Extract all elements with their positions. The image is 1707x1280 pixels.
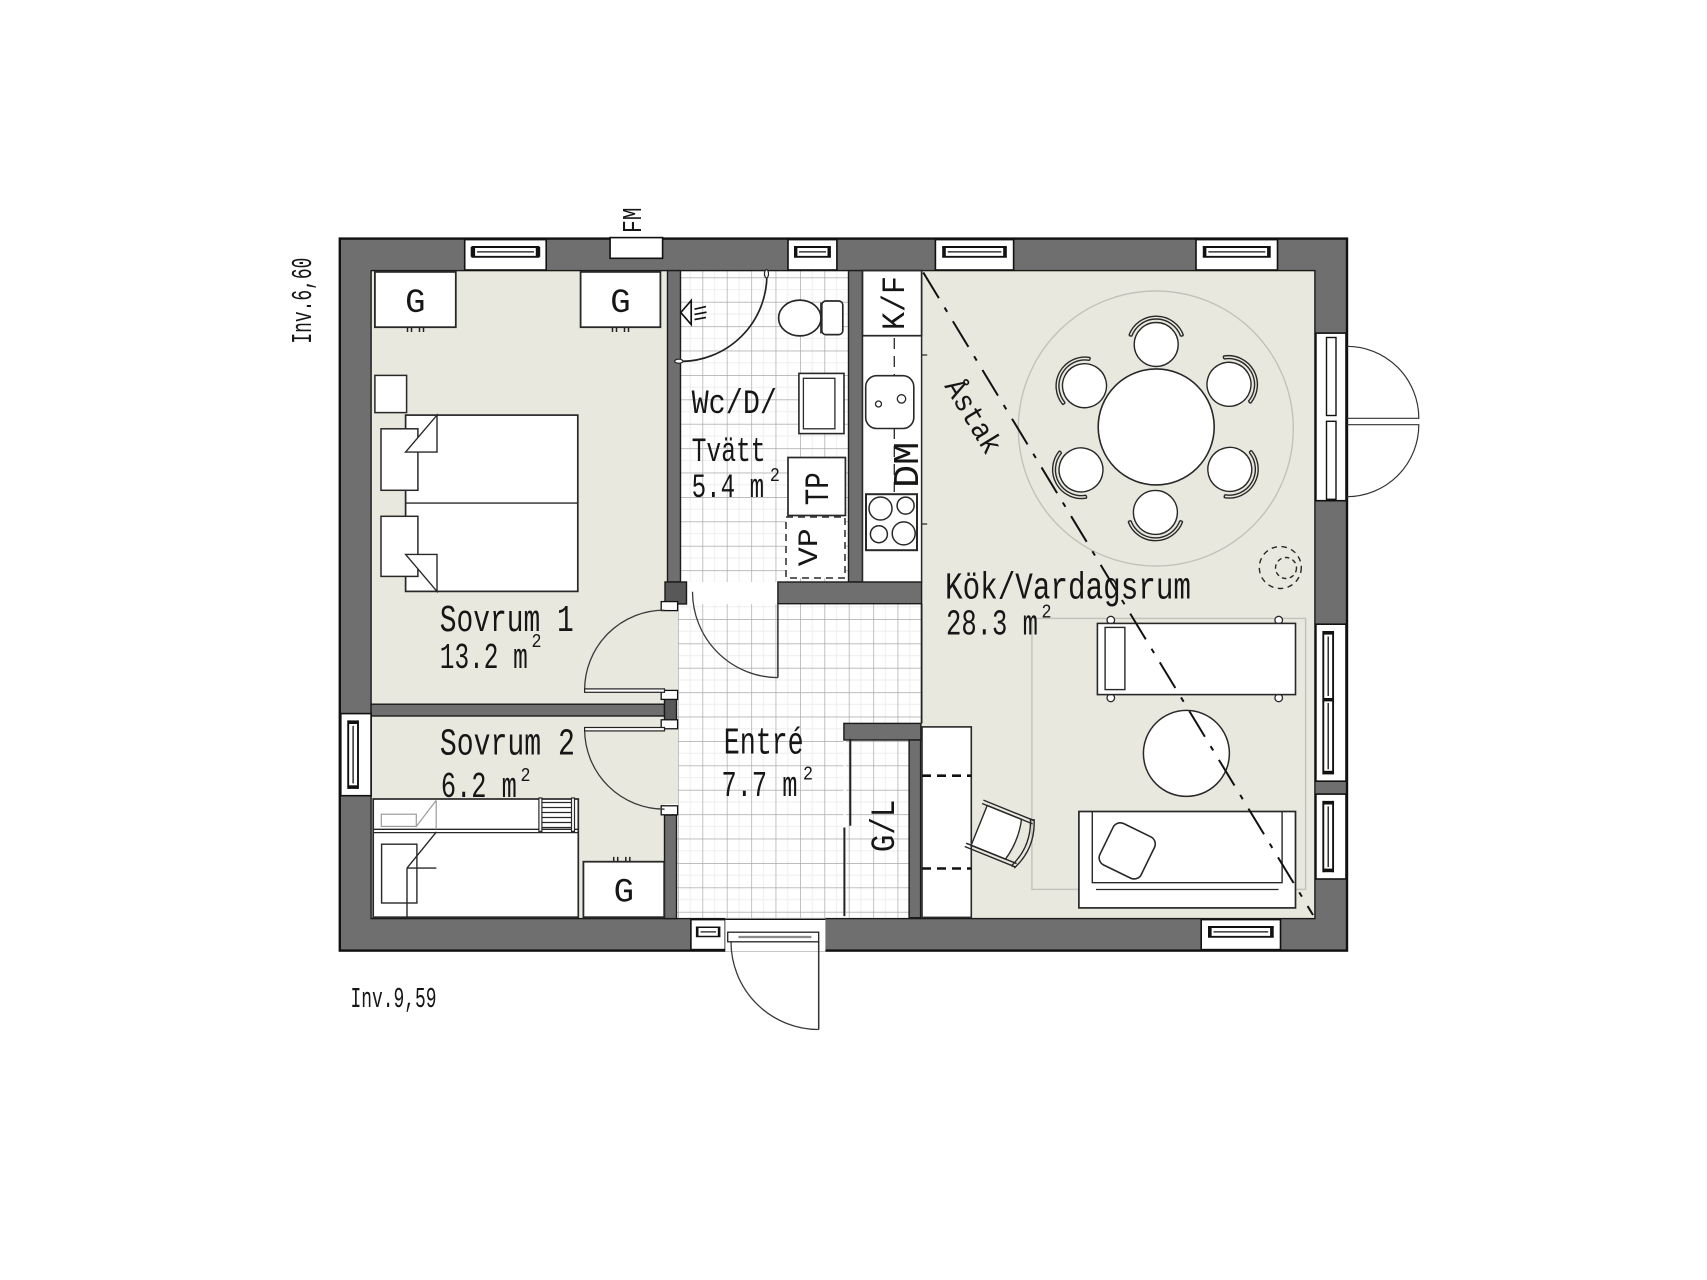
svg-text:G/L: G/L bbox=[867, 800, 905, 853]
svg-text:28.3 m: 28.3 m bbox=[946, 605, 1038, 646]
svg-text:2: 2 bbox=[521, 765, 531, 787]
svg-text:6.2 m: 6.2 m bbox=[441, 767, 517, 808]
svg-text:13.2 m: 13.2 m bbox=[440, 638, 528, 679]
svg-text:2: 2 bbox=[770, 465, 780, 487]
svg-text:Inv.6,60: Inv.6,60 bbox=[287, 258, 320, 344]
svg-text:Sovrum 2: Sovrum 2 bbox=[440, 724, 575, 767]
svg-text:2: 2 bbox=[1042, 601, 1052, 623]
svg-text:2: 2 bbox=[803, 764, 813, 786]
svg-text:Tvätt: Tvätt bbox=[692, 434, 766, 472]
svg-text:G: G bbox=[614, 875, 634, 913]
svg-text:2: 2 bbox=[532, 631, 542, 653]
svg-text:5.4 m: 5.4 m bbox=[692, 470, 765, 508]
svg-text:K/F: K/F bbox=[877, 276, 914, 330]
svg-text:TP: TP bbox=[801, 472, 839, 505]
svg-text:Inv.9,59: Inv.9,59 bbox=[351, 983, 437, 1016]
svg-text:7.7 m: 7.7 m bbox=[722, 766, 798, 807]
svg-text:Sovrum 1: Sovrum 1 bbox=[440, 600, 574, 643]
svg-text:Wc/D/: Wc/D/ bbox=[692, 386, 777, 424]
svg-text:Entré: Entré bbox=[724, 723, 804, 766]
svg-text:G: G bbox=[610, 285, 630, 323]
svg-text:G: G bbox=[405, 285, 425, 323]
svg-text:DM: DM bbox=[888, 442, 929, 488]
svg-text:FM: FM bbox=[620, 208, 650, 234]
svg-text:VP: VP bbox=[795, 528, 826, 566]
